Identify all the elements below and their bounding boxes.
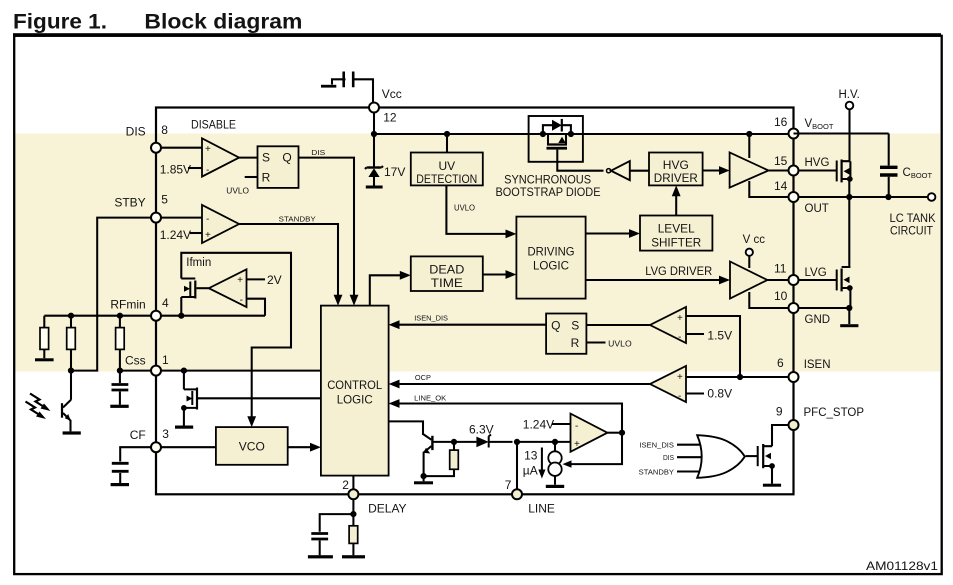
svg-text:DRIVING: DRIVING: [528, 244, 575, 258]
svg-text:CIRCUIT: CIRCUIT: [890, 224, 934, 238]
svg-text:ISEN_DIS: ISEN_DIS: [414, 314, 448, 323]
svg-text:1.85V: 1.85V: [160, 163, 191, 177]
svg-text:LOGIC: LOGIC: [533, 259, 569, 273]
svg-text:7: 7: [505, 478, 512, 492]
svg-text:9: 9: [776, 404, 783, 418]
svg-text:12: 12: [383, 110, 397, 124]
svg-text:10: 10: [774, 289, 788, 303]
svg-text:µA: µA: [523, 464, 538, 478]
svg-text:CONTROL: CONTROL: [327, 378, 382, 392]
svg-text:ISEN: ISEN: [804, 359, 831, 371]
svg-text:+: +: [205, 144, 211, 155]
svg-text:14: 14: [774, 179, 788, 193]
svg-text:+: +: [677, 372, 683, 383]
svg-text:LEVEL: LEVEL: [658, 222, 695, 236]
svg-text:RFmin: RFmin: [110, 298, 145, 312]
svg-text:11: 11: [774, 262, 787, 276]
svg-text:VCO: VCO: [239, 440, 265, 454]
svg-text:+: +: [237, 275, 243, 286]
svg-text:-: -: [206, 214, 209, 225]
svg-text:OCP: OCP: [415, 373, 431, 382]
svg-text:DRIVER: DRIVER: [654, 171, 698, 185]
svg-text:STBY: STBY: [114, 195, 145, 209]
svg-text:HVG: HVG: [805, 157, 830, 169]
svg-text:LVG DRIVER: LVG DRIVER: [645, 264, 712, 278]
svg-text:Q: Q: [551, 318, 560, 332]
svg-text:UVLO: UVLO: [226, 187, 249, 196]
svg-text:S: S: [571, 318, 579, 332]
svg-text:Vcc: Vcc: [382, 87, 402, 101]
svg-text:4: 4: [162, 296, 169, 310]
svg-text:-: -: [678, 391, 681, 402]
svg-text:+: +: [205, 230, 211, 241]
svg-text:DETECTION: DETECTION: [416, 172, 477, 186]
svg-text:-: -: [206, 165, 209, 176]
svg-text:UVLO: UVLO: [608, 340, 632, 349]
svg-text:SHIFTER: SHIFTER: [651, 235, 701, 249]
svg-text:DELAY: DELAY: [368, 502, 406, 516]
svg-text:GND: GND: [805, 314, 831, 326]
svg-text:Css: Css: [125, 354, 146, 368]
svg-text:TIME: TIME: [431, 276, 463, 290]
svg-text:AM01128v1: AM01128v1: [866, 559, 938, 573]
svg-text:+: +: [574, 439, 580, 450]
svg-text:17V: 17V: [384, 165, 405, 179]
svg-text:H.V.: H.V.: [839, 89, 860, 101]
svg-text:1.24V: 1.24V: [160, 228, 191, 242]
svg-text:PFC_STOP: PFC_STOP: [804, 407, 865, 419]
svg-text:UVLO: UVLO: [454, 204, 475, 213]
svg-text:CF: CF: [130, 428, 146, 442]
svg-text:-: -: [575, 421, 578, 432]
svg-text:VBOOT: VBOOT: [805, 118, 834, 131]
svg-text:OUT: OUT: [805, 203, 829, 215]
svg-text:DEAD: DEAD: [429, 262, 464, 276]
svg-text:BOOTSTRAP DIODE: BOOTSTRAP DIODE: [496, 185, 601, 199]
svg-text:2V: 2V: [267, 273, 282, 287]
svg-text:2: 2: [342, 478, 349, 492]
svg-text:STANDBY: STANDBY: [639, 467, 674, 476]
svg-text:Ifmin: Ifmin: [186, 257, 211, 269]
svg-text:LVG: LVG: [805, 267, 827, 279]
svg-text:LINE_OK: LINE_OK: [414, 393, 446, 402]
svg-text:V cc: V cc: [743, 234, 766, 246]
svg-text:0.8V: 0.8V: [707, 387, 732, 401]
svg-text:LINE: LINE: [528, 502, 555, 516]
svg-text:LOGIC: LOGIC: [337, 392, 373, 406]
svg-text:DIS: DIS: [126, 125, 146, 139]
svg-text:15: 15: [774, 154, 788, 168]
svg-text:UV: UV: [438, 159, 455, 173]
svg-text:STANDBY: STANDBY: [279, 215, 316, 224]
svg-text:Q: Q: [282, 151, 291, 165]
svg-text:5: 5: [161, 193, 168, 207]
svg-text:DIS: DIS: [311, 148, 325, 157]
svg-text:DIS: DIS: [663, 453, 674, 462]
svg-text:-: -: [240, 295, 243, 306]
svg-text:13: 13: [524, 449, 538, 463]
svg-text:Block diagram: Block diagram: [144, 11, 302, 34]
svg-text:S: S: [262, 151, 270, 165]
svg-text:-: -: [678, 332, 681, 343]
svg-text:ISEN_DIS: ISEN_DIS: [639, 440, 674, 449]
svg-text:R: R: [571, 336, 580, 350]
svg-text:1: 1: [162, 353, 169, 367]
svg-text:16: 16: [774, 115, 788, 129]
svg-text:1.5V: 1.5V: [707, 328, 732, 342]
svg-text:8: 8: [161, 123, 168, 137]
svg-text:DISABLE: DISABLE: [191, 117, 236, 131]
svg-text:+: +: [677, 313, 683, 324]
svg-text:6: 6: [777, 356, 784, 370]
svg-text:Figure 1.: Figure 1.: [13, 11, 107, 34]
svg-text:HVG: HVG: [663, 158, 689, 172]
svg-text:1.24V: 1.24V: [523, 418, 554, 432]
svg-text:3: 3: [162, 427, 169, 441]
svg-text:R: R: [262, 170, 271, 184]
